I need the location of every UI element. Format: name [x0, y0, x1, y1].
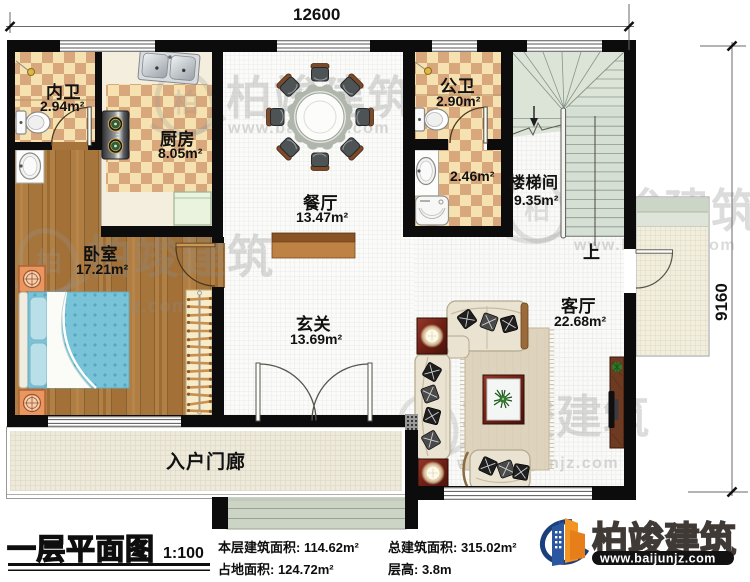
- svg-text:www.baijunjz.com: www.baijunjz.com: [599, 552, 716, 566]
- svg-text:9160: 9160: [712, 283, 731, 321]
- svg-text:入户门廊: 入户门廊: [166, 450, 246, 473]
- svg-text:12600: 12600: [293, 5, 340, 24]
- svg-text:8.05m²: 8.05m²: [158, 145, 203, 161]
- svg-text:22.68m²: 22.68m²: [554, 313, 606, 329]
- svg-text:2.90m²: 2.90m²: [436, 93, 481, 109]
- svg-text:9.35m²: 9.35m²: [514, 192, 559, 208]
- svg-text:一层平面图: 一层平面图: [7, 534, 155, 566]
- svg-text:上: 上: [583, 243, 600, 262]
- svg-text:层高: 3.8m: 层高: 3.8m: [388, 562, 452, 577]
- svg-text:本层建筑面积: 114.62m²: 本层建筑面积: 114.62m²: [218, 540, 360, 555]
- svg-text:13.69m²: 13.69m²: [290, 331, 342, 347]
- svg-text:总建筑面积: 315.02m²: 总建筑面积: 315.02m²: [388, 540, 517, 555]
- svg-text:1:100: 1:100: [163, 545, 204, 562]
- svg-text:柏: 柏: [173, 88, 199, 118]
- svg-text:占地面积: 124.72m²: 占地面积: 124.72m²: [218, 562, 334, 577]
- svg-text:楼梯间: 楼梯间: [509, 173, 559, 192]
- svg-text:2.46m²: 2.46m²: [450, 168, 495, 184]
- svg-text:2.94m²: 2.94m²: [40, 98, 85, 114]
- svg-text:17.21m²: 17.21m²: [76, 261, 128, 277]
- svg-text:13.47m²: 13.47m²: [296, 209, 348, 225]
